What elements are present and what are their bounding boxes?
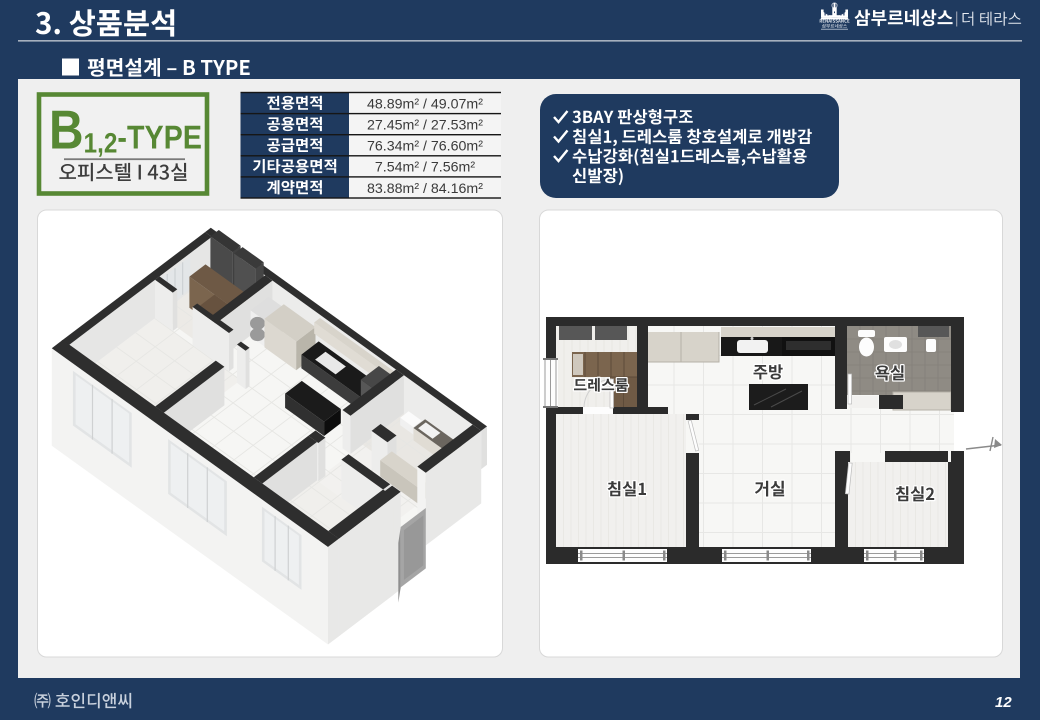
svg-text:48.89m² / 49.07m²: 48.89m² / 49.07m² — [367, 96, 483, 112]
svg-text:83.88m² / 84.16m²: 83.88m² / 84.16m² — [367, 181, 483, 197]
svg-text:27.45m² / 27.53m²: 27.45m² / 27.53m² — [367, 117, 483, 133]
svg-text:76.34m² / 76.60m²: 76.34m² / 76.60m² — [367, 139, 483, 155]
svg-text:12: 12 — [995, 694, 1012, 711]
svg-text:7.54m² / 7.56m²: 7.54m² / 7.56m² — [375, 160, 475, 176]
